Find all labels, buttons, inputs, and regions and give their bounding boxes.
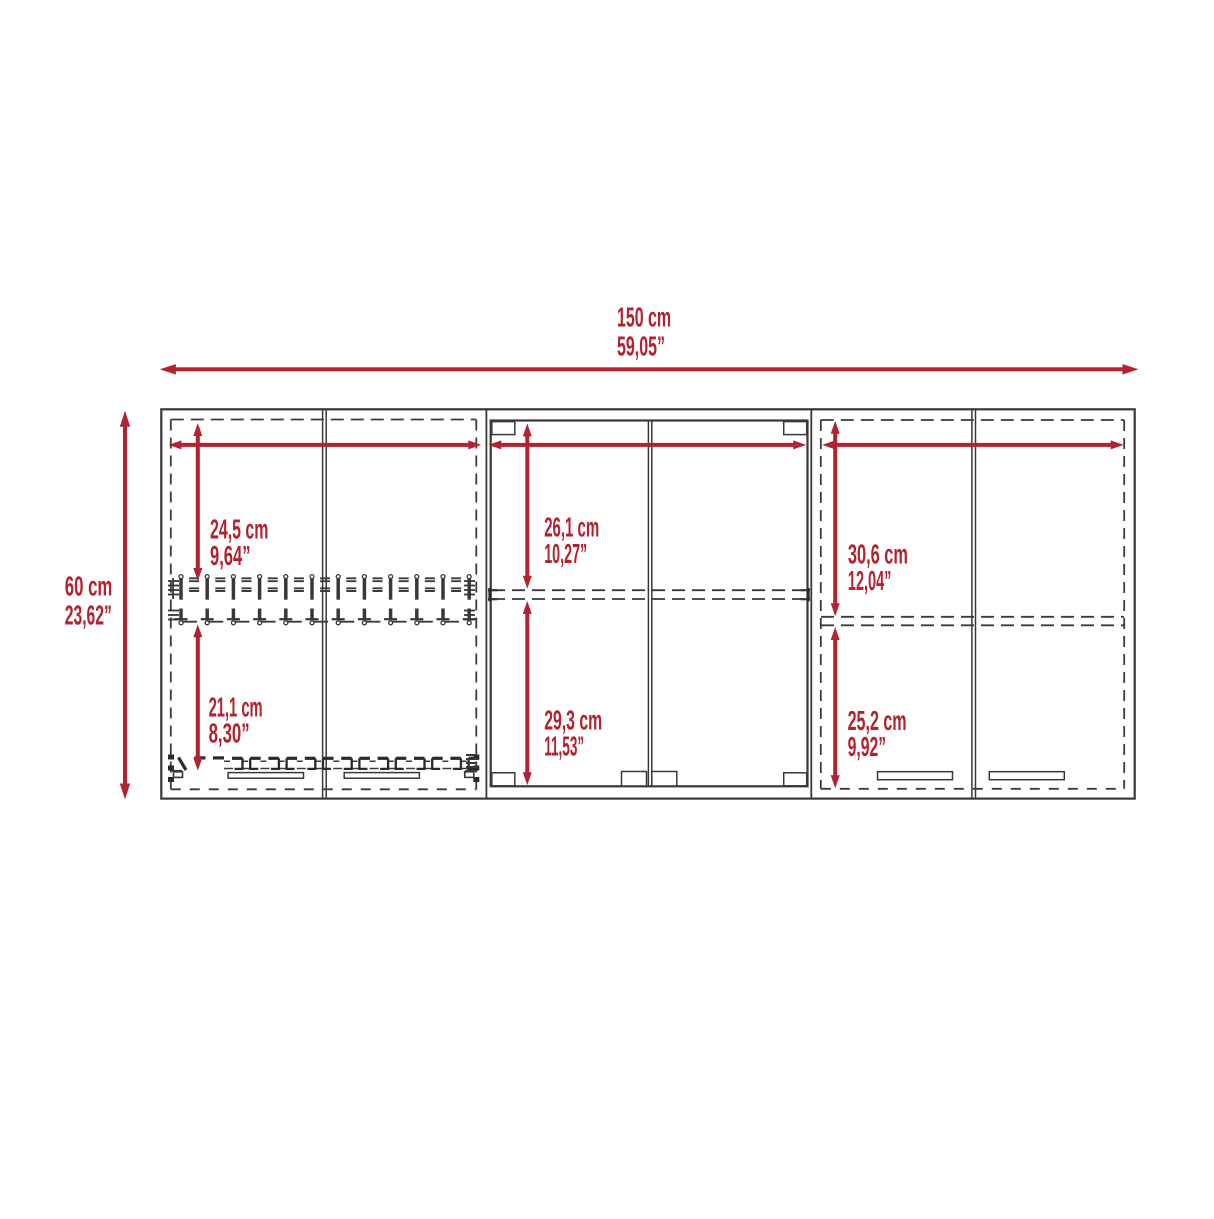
svg-text:11,53”: 11,53” — [544, 731, 584, 762]
svg-text:9,64”: 9,64” — [210, 540, 251, 571]
svg-text:23,62”: 23,62” — [65, 599, 112, 630]
svg-text:9,92”: 9,92” — [848, 731, 887, 762]
svg-text:10,27”: 10,27” — [544, 538, 587, 569]
svg-text:60 cm: 60 cm — [65, 571, 113, 602]
svg-text:12,04”: 12,04” — [848, 565, 892, 596]
svg-text:8,30”: 8,30” — [209, 718, 250, 749]
svg-text:150 cm: 150 cm — [617, 301, 671, 332]
svg-text:59,05”: 59,05” — [617, 331, 665, 362]
